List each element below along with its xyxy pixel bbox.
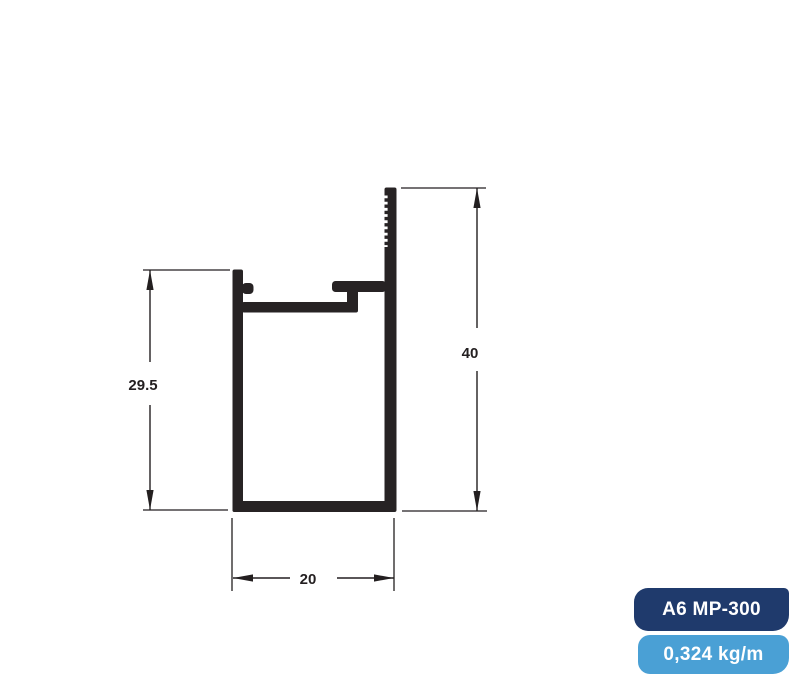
profile-left-tab — [242, 283, 254, 294]
profile-right-wall-fin — [385, 188, 397, 513]
profile-hook-arm — [332, 281, 386, 292]
dimension-right: 40 — [401, 188, 487, 511]
dimension-left-value: 29.5 — [128, 377, 157, 394]
arrow-up — [146, 270, 153, 290]
model-badge: A6 MP-300 — [634, 588, 789, 631]
model-badge-label: A6 MP-300 — [662, 599, 761, 621]
profile-bottom-wall — [233, 501, 396, 512]
profile-shape — [233, 188, 397, 513]
arrow-down — [146, 490, 153, 510]
arrow-up — [473, 188, 480, 208]
dimension-right-value: 40 — [462, 345, 479, 362]
dimension-bottom-value: 20 — [300, 571, 317, 588]
arrow-down — [473, 491, 480, 511]
profile-left-wall — [233, 270, 244, 513]
arrow-left — [233, 574, 253, 581]
page: 29.5 40 20 A6 MP-300 0,324 kg/m — [0, 0, 795, 678]
profile-drawing: 29.5 40 20 — [0, 0, 795, 678]
profile-inner-web — [242, 302, 358, 313]
arrow-right — [374, 574, 394, 581]
weight-badge: 0,324 kg/m — [638, 635, 789, 674]
dimension-left: 29.5 — [128, 270, 230, 510]
weight-badge-label: 0,324 kg/m — [663, 644, 763, 666]
dimension-bottom: 20 — [232, 518, 394, 591]
